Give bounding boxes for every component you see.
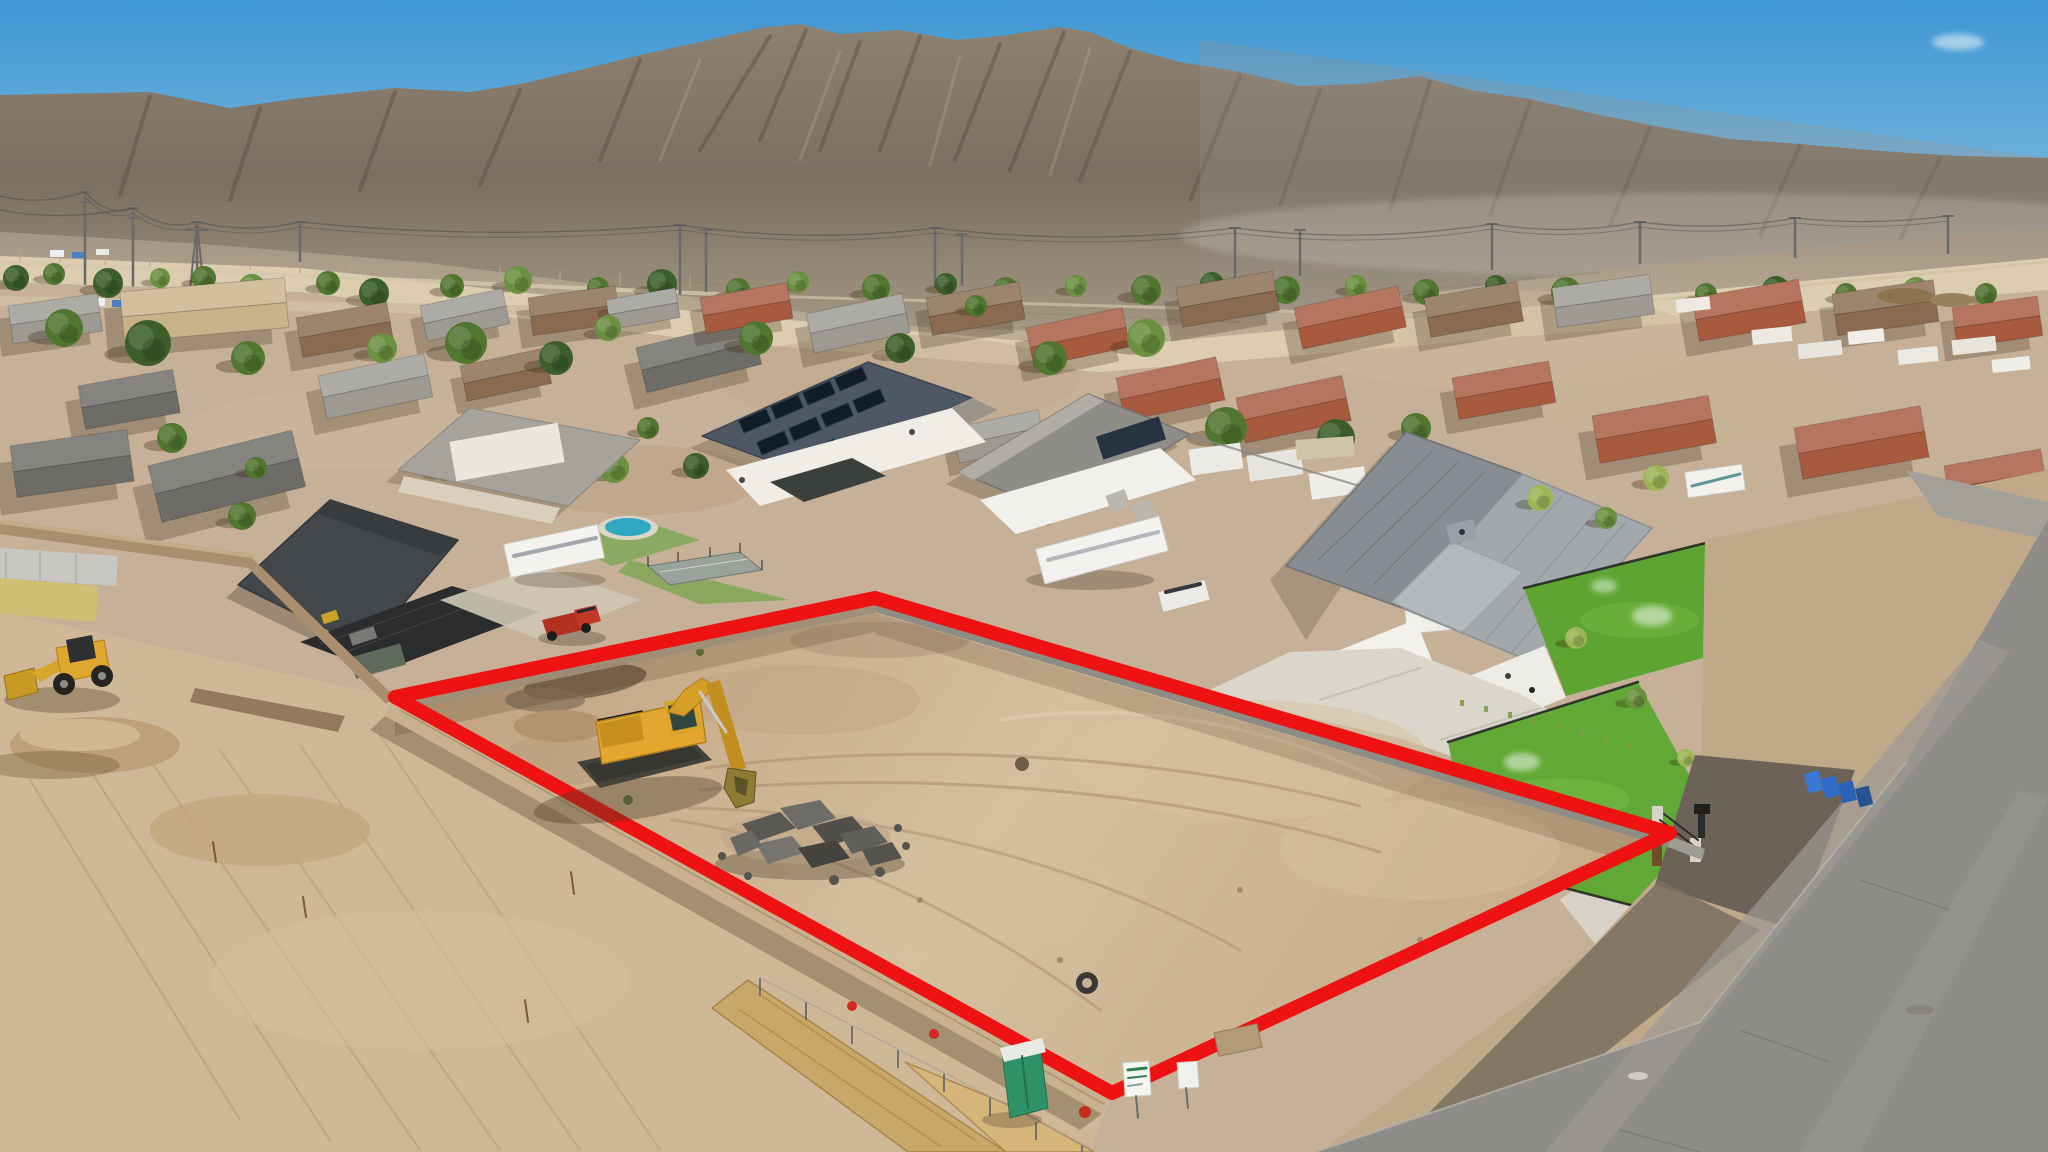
tree-shade	[1283, 287, 1297, 301]
spiderweb-decor	[1504, 753, 1540, 771]
dirt-pile	[1930, 293, 1974, 307]
tree-shade	[239, 513, 253, 527]
machines-props-33	[875, 867, 885, 877]
machines-props-37	[894, 824, 902, 832]
machines-props-36	[829, 875, 839, 885]
tree-shade	[1046, 355, 1063, 372]
window	[1505, 673, 1511, 679]
tree-shade	[1537, 495, 1550, 508]
tree-shade	[610, 465, 625, 480]
tree-shade	[795, 280, 806, 291]
road-debris	[1628, 1072, 1648, 1080]
tree-shade	[1603, 516, 1614, 527]
distant-truck	[50, 250, 64, 257]
rv-shadow	[514, 572, 606, 588]
tree-shade	[1653, 475, 1666, 488]
road-stain	[1906, 1005, 1934, 1015]
lot-18	[1237, 887, 1243, 893]
distant-truck	[96, 249, 109, 255]
tree-shade	[1684, 756, 1693, 765]
dirt-clump	[1015, 757, 1029, 771]
tree-shade	[378, 345, 393, 360]
machines-props-34	[902, 842, 910, 850]
swimming-pool	[605, 518, 651, 536]
tree-shade	[515, 277, 529, 291]
tan-container	[1295, 436, 1354, 460]
machines-props-35	[744, 872, 752, 880]
tree-shade	[943, 282, 954, 293]
tree-shade	[896, 345, 911, 360]
construction-sign	[1177, 1061, 1199, 1088]
tree-shade	[461, 339, 482, 360]
wheel	[547, 631, 557, 641]
tree-shade	[449, 284, 461, 296]
tree-shade	[1221, 424, 1242, 445]
graded-pad	[210, 910, 630, 1050]
tree-shade	[51, 272, 62, 283]
tree-shade	[1141, 334, 1160, 353]
tree-shade	[104, 280, 119, 295]
dormer-window	[1459, 529, 1465, 535]
spoil-mound	[514, 710, 606, 742]
red-bucket	[1079, 1106, 1091, 1118]
porch-lantern	[1529, 687, 1535, 693]
cloud	[1932, 34, 1984, 50]
dirt-mound	[150, 794, 370, 866]
mailbox	[1694, 804, 1710, 814]
tree-shade	[1073, 284, 1084, 295]
tree-shade	[1573, 636, 1584, 647]
tree-shade	[142, 338, 165, 361]
tree-shade	[973, 304, 984, 315]
tree-shade	[645, 426, 656, 437]
tree-shade	[325, 281, 337, 293]
red-marker	[929, 1029, 939, 1039]
tree-shade	[693, 463, 706, 476]
bottom-left-dirt-8	[20, 719, 140, 751]
machines-props-19	[60, 680, 68, 688]
tree-shade	[605, 325, 618, 338]
scene-canvas	[0, 0, 2048, 1152]
lot-17	[917, 897, 923, 903]
construction-sign	[1123, 1061, 1151, 1097]
tree-shade	[253, 466, 264, 477]
machines-props-32	[718, 852, 726, 860]
tree-shade	[752, 335, 769, 352]
tire-center	[1082, 978, 1092, 988]
tree-shade	[59, 324, 78, 343]
distant-truck	[72, 252, 84, 258]
tree-shade	[13, 275, 26, 288]
window	[739, 477, 745, 483]
mailbox-post	[1698, 812, 1705, 838]
loader-cab	[66, 635, 96, 663]
lot-16	[1057, 957, 1063, 963]
spiderweb-decor	[1632, 606, 1672, 626]
machines-props-21	[98, 672, 106, 680]
tree-shade	[1983, 292, 1994, 303]
aerial-photo-vacant-lot	[0, 0, 2048, 1152]
dirt-pile	[1877, 288, 1933, 304]
tree-shade	[1633, 696, 1644, 707]
tree-shade	[1142, 287, 1157, 302]
tree-shade	[552, 355, 569, 372]
sign-text-line	[1128, 1068, 1146, 1070]
spiderweb-decor	[1591, 579, 1617, 593]
tree-shade	[244, 355, 261, 372]
tree-shade	[168, 435, 183, 450]
wheel	[581, 623, 591, 633]
window	[909, 429, 915, 435]
red-marker	[847, 1001, 857, 1011]
tree-shade	[158, 276, 168, 286]
